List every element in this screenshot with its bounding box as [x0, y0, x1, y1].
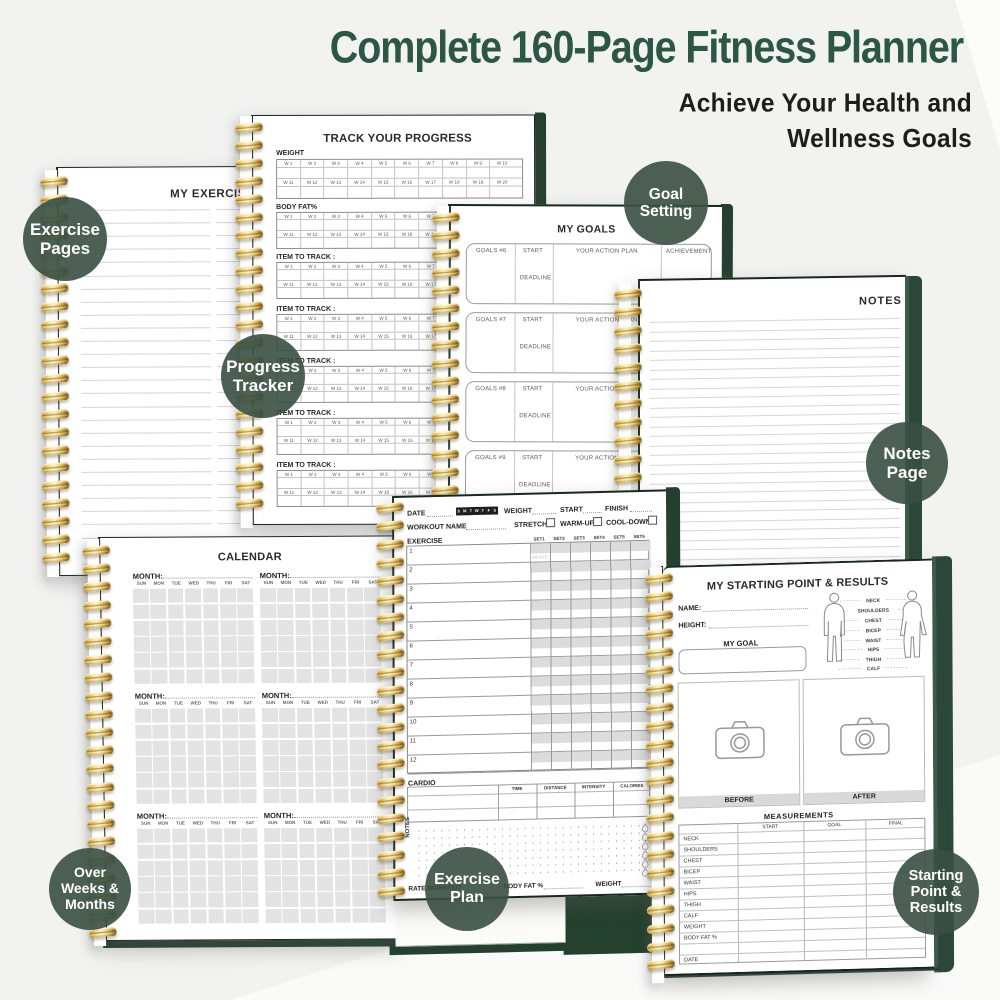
svg-text:CHEST: CHEST	[865, 618, 882, 624]
svg-text:BICEP: BICEP	[866, 628, 882, 634]
svg-text:CALF: CALF	[867, 666, 880, 672]
svg-text:WAIST: WAIST	[865, 638, 881, 644]
svg-text:NECK: NECK	[866, 598, 881, 604]
svg-text:HIPS: HIPS	[868, 647, 880, 653]
svg-text:THIGH: THIGH	[866, 657, 882, 663]
svg-text:SHOULDERS: SHOULDERS	[858, 608, 890, 615]
